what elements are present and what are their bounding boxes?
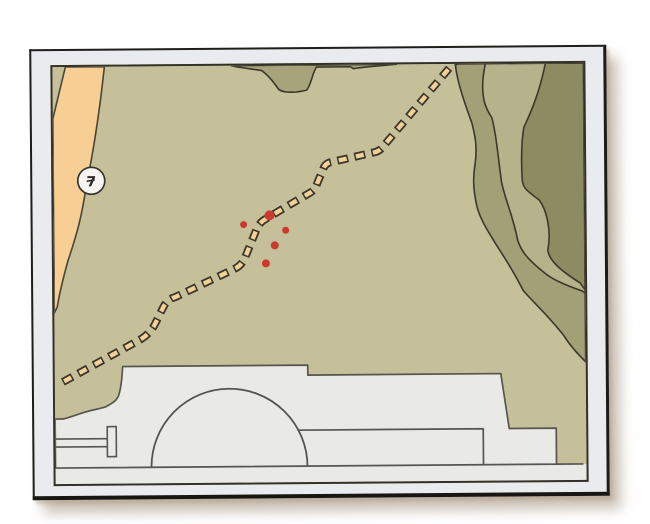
map-drawing: 7 <box>52 63 586 484</box>
poi-dot-icon <box>271 241 279 249</box>
picture-frame: 7 <box>29 45 610 501</box>
sketched-map-scene: 7 <box>0 0 650 524</box>
pier-block <box>107 427 116 457</box>
route-shield: 7 <box>78 167 105 194</box>
poi-dot-icon <box>265 210 275 220</box>
poi-dot-icon <box>240 221 247 228</box>
poi-dot-icon <box>282 227 289 234</box>
poi-dot-icon <box>262 259 270 267</box>
route-shield-number: 7 <box>86 174 96 190</box>
map-canvas: 7 <box>50 61 588 486</box>
